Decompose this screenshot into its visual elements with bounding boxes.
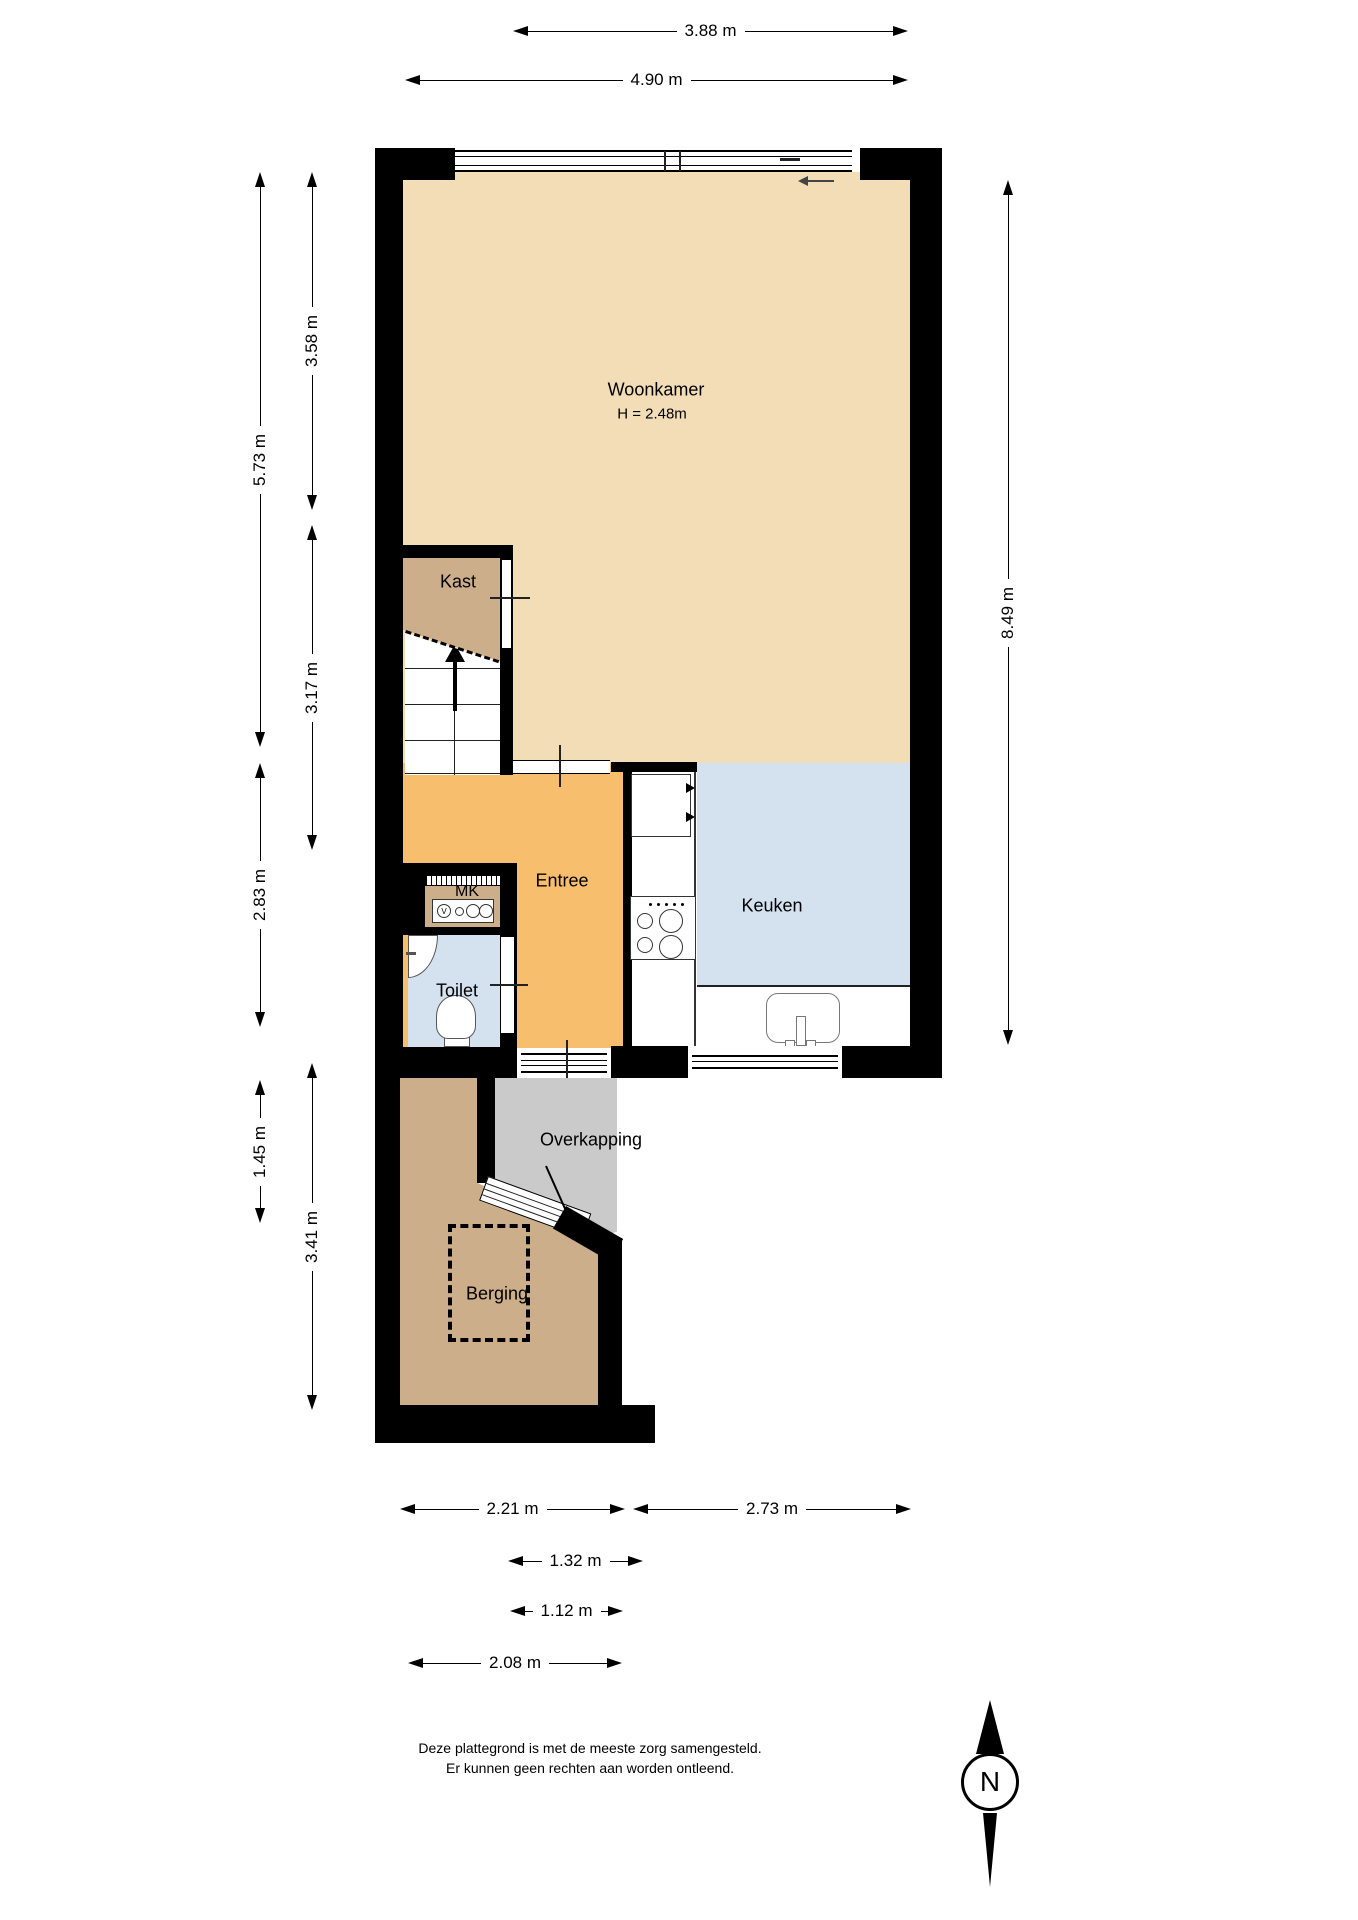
slide-arrow-line <box>806 180 834 182</box>
kitchen-window <box>692 1055 838 1069</box>
window-mullion <box>679 151 681 171</box>
meter-dial: V <box>437 904 451 918</box>
burner <box>659 909 683 933</box>
berging-label: Berging <box>466 1284 528 1305</box>
compass-circle: N <box>961 1753 1019 1811</box>
burner <box>637 913 653 929</box>
dimension-label: 8.49 m <box>998 579 1018 647</box>
overkapping-label: Overkapping <box>540 1130 642 1151</box>
wall-segment <box>375 150 403 1063</box>
cabinet-handle-icon <box>686 812 695 822</box>
toilet-door-tick <box>490 984 528 986</box>
entree-backdoor <box>521 1053 607 1073</box>
woonkamer-label: Woonkamer <box>608 380 705 401</box>
dimension-label: 2.73 m <box>738 1499 806 1519</box>
meter-box: V <box>432 899 494 923</box>
north-arrow-tail-icon <box>983 1813 997 1887</box>
dimension-label: 4.90 m <box>623 70 691 90</box>
disclaimer-line-2: Er kunnen geen rechten aan worden ontlee… <box>280 1758 900 1778</box>
compass: N <box>940 1695 1040 1895</box>
sink-faucet <box>796 1016 806 1046</box>
window-mullion <box>664 151 666 171</box>
stove-dot <box>649 903 652 906</box>
meter-dial <box>479 904 493 918</box>
dimension-label: 3.41 m <box>302 1203 322 1271</box>
wall-segment <box>375 148 455 180</box>
dimension-bottom-4: 1.12 m <box>510 1602 623 1620</box>
floor-plan-canvas: V <box>0 0 1358 1920</box>
wall-segment <box>910 180 942 1046</box>
dimension-label: 3.58 m <box>302 307 322 375</box>
stove <box>630 896 696 960</box>
wall-segment <box>425 927 501 935</box>
wall-segment <box>477 1078 495 1183</box>
counter-edge-line <box>697 985 910 987</box>
dimension-top-1: 3.88 m <box>513 22 908 40</box>
living-room-window <box>455 150 852 172</box>
woonkamer-height-note: H = 2.48m <box>617 406 687 423</box>
kast-door <box>501 560 512 648</box>
kast-label: Kast <box>440 572 476 593</box>
dimension-left-inner-2: 3.17 m <box>302 525 322 850</box>
dimension-right-1: 8.49 m <box>998 180 1018 1045</box>
burner <box>659 935 683 959</box>
dimension-top-2: 4.90 m <box>405 71 908 89</box>
dimension-label: 3.88 m <box>677 21 745 41</box>
dimension-label: 5.73 m <box>250 426 270 494</box>
wall-segment <box>860 148 942 180</box>
toilet-label: Toilet <box>436 981 478 1002</box>
cabinet-handle-icon <box>686 783 695 793</box>
entree-woonkamer-threshold <box>513 760 610 774</box>
dimension-label: 1.45 m <box>250 1118 270 1186</box>
stairs-up-arrow-stem <box>453 661 457 711</box>
entree-label: Entree <box>535 871 588 892</box>
dimension-left-outer-2: 2.83 m <box>250 763 270 1027</box>
dimension-bottom-3: 1.32 m <box>508 1552 643 1570</box>
dimension-left-inner-1: 3.58 m <box>302 172 322 510</box>
slide-arrow-icon <box>798 176 808 186</box>
wall-segment <box>611 1046 688 1078</box>
wall-segment <box>375 1405 655 1443</box>
toilet-bowl <box>436 995 476 1039</box>
threshold-tick <box>559 745 561 787</box>
disclaimer: Deze plattegrond is met de meeste zorg s… <box>280 1738 900 1778</box>
stove-dot <box>681 903 684 906</box>
stove-dot <box>665 903 668 906</box>
dimension-label: 3.17 m <box>302 654 322 722</box>
wall-segment <box>842 1046 942 1078</box>
dimension-label: 2.21 m <box>479 1499 547 1519</box>
dimension-label: 1.12 m <box>533 1601 601 1621</box>
stair-step-line <box>405 773 500 774</box>
dimension-label: 2.83 m <box>250 861 270 929</box>
keuken-label: Keuken <box>741 896 802 917</box>
disclaimer-line-1: Deze plattegrond is met de meeste zorg s… <box>280 1738 900 1758</box>
meter-dial <box>466 904 480 918</box>
dimension-label: 2.08 m <box>481 1653 549 1673</box>
dimension-bottom-5: 2.08 m <box>408 1654 622 1672</box>
kitchen-cabinet <box>631 774 691 837</box>
dimension-left-outer-3: 1.45 m <box>250 1080 270 1223</box>
dimension-left-inner-3: 3.41 m <box>302 1063 322 1410</box>
dimension-label: 1.32 m <box>542 1551 610 1571</box>
wall-segment <box>403 545 513 558</box>
sink-faucet-tick <box>406 952 416 955</box>
north-arrow-head-icon <box>976 1700 1004 1754</box>
dimension-bottom-2: 2.73 m <box>633 1500 911 1518</box>
dimension-bottom-1: 2.21 m <box>400 1500 625 1518</box>
mk-label: MK <box>455 883 479 901</box>
kast-door-tick <box>490 597 530 599</box>
wall-segment <box>611 762 697 772</box>
stair-step-line <box>405 740 500 741</box>
stove-dot <box>657 903 660 906</box>
wall-segment <box>375 1063 400 1443</box>
wall-segment <box>598 1238 622 1408</box>
burner <box>637 937 653 953</box>
meter-dial <box>455 907 464 916</box>
window-dark-tick <box>780 158 800 161</box>
dimension-left-outer-1: 5.73 m <box>250 172 270 747</box>
wall-segment <box>403 875 425 935</box>
stove-dot <box>673 903 676 906</box>
